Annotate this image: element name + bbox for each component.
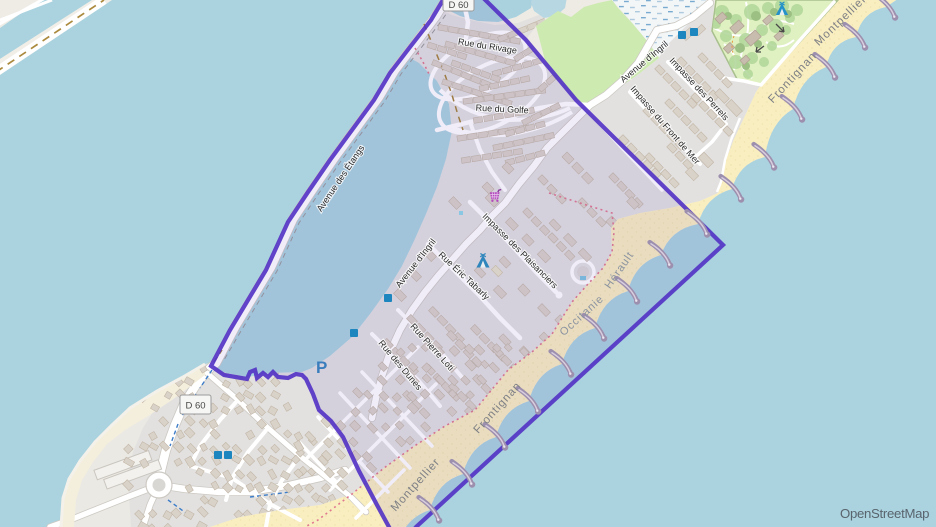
svg-text:P: P [316, 358, 327, 377]
svg-text:D 60: D 60 [185, 401, 205, 412]
svg-text:OpenStreetMap: OpenStreetMap [840, 506, 929, 521]
svg-text:D 60: D 60 [448, 0, 468, 11]
